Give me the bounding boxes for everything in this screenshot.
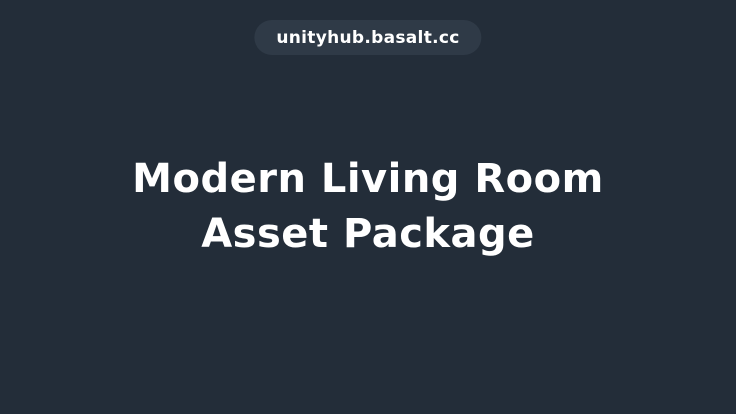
- page-title-line2: Asset Package: [201, 207, 535, 262]
- hero-screen: unityhub.basalt.cc Modern Living Room As…: [0, 0, 736, 414]
- page-title: Modern Living Room Asset Package: [0, 0, 736, 414]
- page-title-line1: Modern Living Room: [132, 152, 604, 207]
